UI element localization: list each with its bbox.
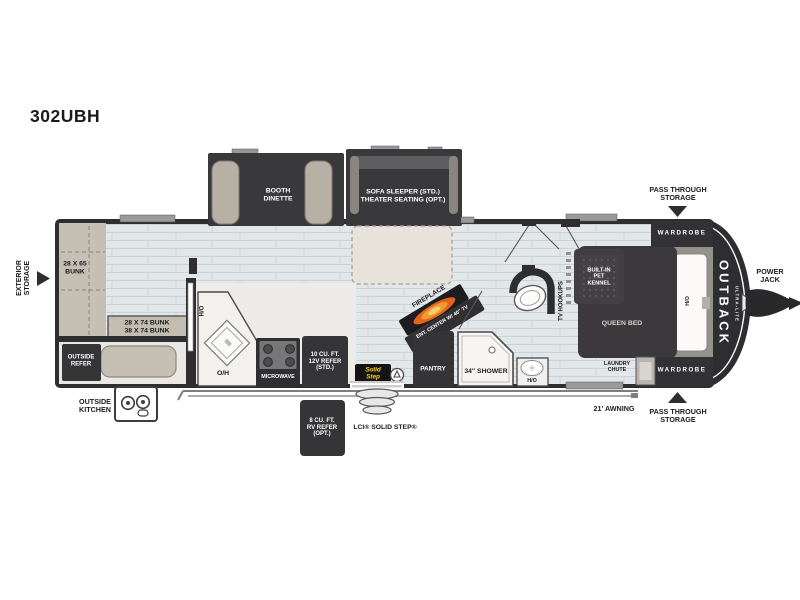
pass-through-arrow-top [668, 206, 687, 217]
laundry-chute-box [636, 357, 655, 385]
exterior-storage-arrow [37, 271, 50, 286]
page-title: 302UBH [30, 106, 100, 127]
dinette-bench [305, 161, 332, 224]
pantry-box [413, 331, 454, 387]
outside-kitchen-cooktop [115, 387, 157, 421]
awning-line [178, 391, 638, 400]
bunkroom-door [188, 283, 193, 351]
dinette-bench [212, 161, 239, 224]
front-closet [674, 254, 710, 351]
pass-through-arrow-bottom [668, 392, 687, 403]
sofa-sleeper-slide [346, 146, 462, 226]
wardrobe-bottom-box [651, 357, 713, 386]
floorplan-canvas [0, 0, 800, 600]
range-microwave [256, 338, 300, 387]
recycle-icon [391, 369, 404, 382]
vertical-bunk [59, 223, 106, 342]
lower-bunk-mattress [101, 346, 176, 377]
power-jack-shape [746, 289, 800, 317]
entry-steps [356, 389, 398, 414]
booth-dinette-slide [208, 149, 344, 226]
outside-refer-box [62, 344, 101, 381]
pet-kennel-box [566, 249, 624, 304]
water-heater-box [517, 358, 548, 386]
floorplan: 302UBH EXTERIOR STORAGE 28 X 65 BUNK 28 … [0, 0, 800, 600]
slide-travel-path [352, 226, 452, 284]
horizontal-bunk [108, 316, 187, 339]
refrigerator-12v-box [302, 336, 348, 387]
rv-refer-8-box [300, 400, 345, 456]
wardrobe-top-box [651, 221, 713, 247]
entry-door [350, 381, 404, 389]
